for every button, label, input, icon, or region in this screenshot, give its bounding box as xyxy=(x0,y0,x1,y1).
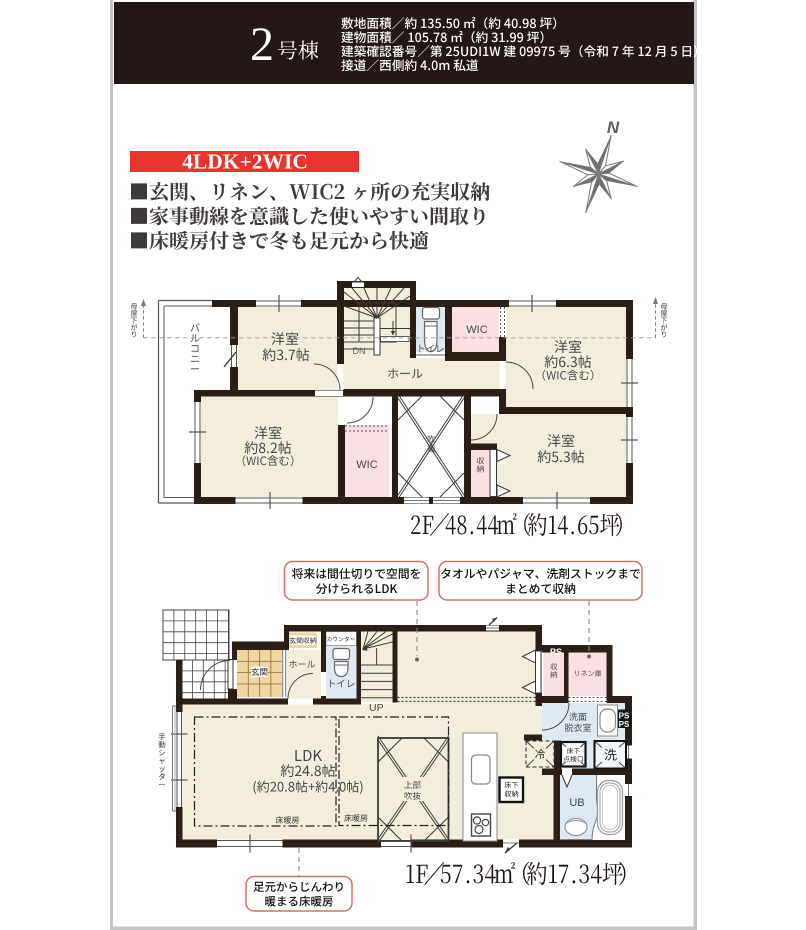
svg-text:4LDK+2WIC: 4LDK+2WIC xyxy=(182,150,308,174)
svg-text:N: N xyxy=(607,118,620,137)
svg-text:PS: PS xyxy=(619,720,630,729)
svg-text:UP: UP xyxy=(369,702,384,714)
svg-text:WIC: WIC xyxy=(356,459,377,471)
svg-text:WIC: WIC xyxy=(466,324,487,336)
svg-text:DN: DN xyxy=(353,346,366,356)
svg-text:2: 2 xyxy=(250,18,274,71)
svg-text:UB: UB xyxy=(569,797,584,809)
svg-text:PS: PS xyxy=(550,647,562,657)
